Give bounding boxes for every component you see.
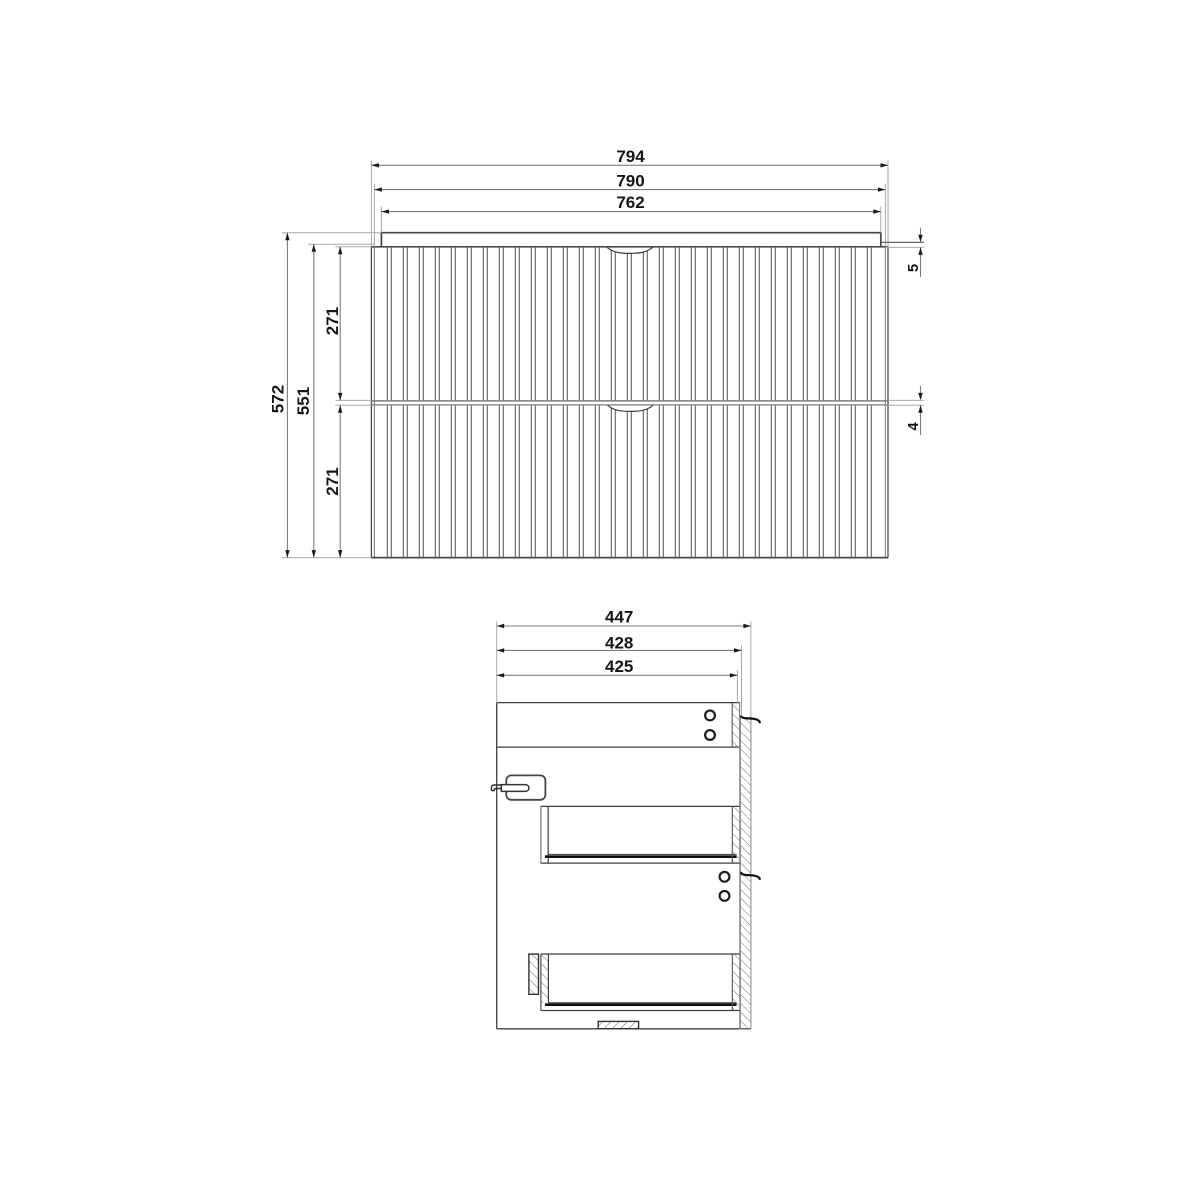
svg-text:5: 5	[905, 264, 922, 272]
svg-text:447: 447	[605, 607, 633, 626]
svg-text:762: 762	[616, 193, 644, 212]
svg-text:271: 271	[323, 307, 342, 335]
svg-text:794: 794	[616, 147, 645, 166]
svg-text:4: 4	[905, 422, 922, 431]
svg-text:428: 428	[605, 634, 633, 653]
svg-text:790: 790	[616, 171, 644, 190]
svg-text:425: 425	[605, 657, 633, 676]
svg-text:572: 572	[269, 385, 288, 413]
svg-text:271: 271	[323, 467, 342, 495]
svg-text:551: 551	[294, 387, 313, 415]
